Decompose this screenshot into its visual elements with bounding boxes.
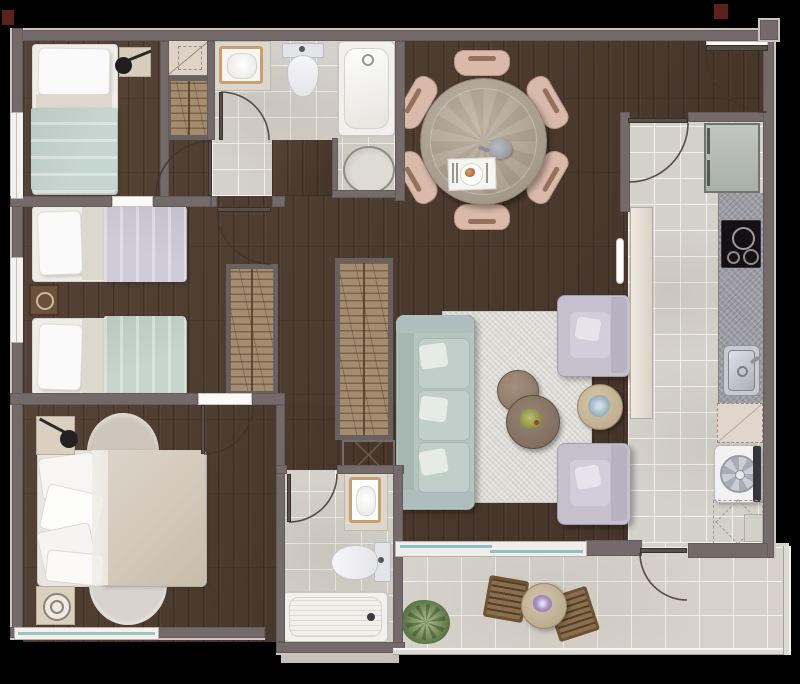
- wall-balcony-stub: [585, 540, 642, 556]
- washer-drum-center: [735, 470, 745, 480]
- armchair-pillow: [574, 316, 601, 341]
- desk-lamp-icon: [60, 430, 78, 448]
- entry-column: [758, 18, 780, 42]
- wall-bedroom1-right: [160, 41, 169, 204]
- door-leaf-bedroom1: [208, 141, 212, 196]
- structural-column: [2, 10, 14, 25]
- wall-kitchen-bottom: [688, 543, 768, 558]
- burner: [727, 251, 740, 264]
- dining-chair: [454, 204, 510, 230]
- sliding-glass-door: [395, 541, 587, 557]
- table-plant: [520, 409, 542, 429]
- sofa-pillow: [419, 395, 449, 422]
- structural-column: [714, 4, 728, 19]
- balcony-railing-right: [783, 546, 791, 655]
- sink-basin: [356, 486, 376, 516]
- plate-food: [465, 168, 475, 177]
- wall-bed1-bottom-b: [153, 196, 211, 207]
- wall-shower-bottom: [332, 190, 396, 198]
- door-leaf-bathroom1: [219, 92, 223, 140]
- threshold: [112, 196, 153, 207]
- teapot-icon: [488, 139, 512, 159]
- plant-leaves: [406, 604, 446, 640]
- window-bedroom1: [11, 112, 23, 199]
- sofa-armrest: [396, 315, 473, 333]
- balcony-floor: [393, 543, 789, 650]
- bathtub-drain: [362, 54, 374, 66]
- bed-blanket-mint: [104, 316, 186, 396]
- hall-wood-notch: [272, 140, 336, 196]
- bed-blanket-lavender: [104, 204, 186, 282]
- cutlery: [486, 163, 488, 183]
- nightstand-ring: [36, 292, 54, 310]
- wall-bath2-top-a: [276, 465, 287, 474]
- bed-blanket-mint: [31, 108, 117, 193]
- small-cabinet: [744, 514, 763, 542]
- bench-white: [616, 238, 624, 284]
- door-leaf-bathroom2: [287, 474, 291, 522]
- bed-sheet: [82, 318, 106, 394]
- wall-closet-bath1: [207, 41, 215, 140]
- sliding-glass-pane: [400, 545, 492, 548]
- sofa-pillow: [418, 342, 448, 370]
- window-sill: [281, 655, 399, 663]
- balcony-railing-bottom: [393, 648, 790, 655]
- bed-pillow: [37, 323, 83, 390]
- toilet-button: [378, 557, 384, 563]
- wall-bath2-bottom: [276, 642, 405, 655]
- wall-kitchen-top-b: [688, 112, 764, 122]
- wall-bath2-right: [393, 465, 403, 655]
- wall-bath1-right: [395, 41, 405, 201]
- wall-bed1-bottom-a: [10, 196, 112, 207]
- wall-top: [10, 28, 776, 41]
- wall-right: [763, 41, 776, 558]
- bathtub-drain: [367, 613, 375, 621]
- washer-lid-open: [753, 446, 761, 502]
- door-leaf-bedroom2: [217, 207, 271, 212]
- door-leaf-entry: [706, 45, 768, 51]
- toilet-button: [299, 46, 305, 52]
- table-plant-berry: [534, 420, 539, 425]
- armchair-back: [611, 445, 627, 521]
- wall-bed2-top-right: [272, 196, 285, 207]
- round-shower: [343, 146, 395, 194]
- floor-plan: [0, 0, 800, 684]
- wall-kitchen-left: [620, 112, 630, 212]
- armchair-back: [611, 297, 627, 373]
- door-leaf-balcony: [640, 548, 687, 553]
- bed-pillow: [37, 210, 83, 275]
- bed-sheet: [82, 206, 106, 280]
- bed-pillow: [38, 47, 111, 96]
- wall-node: [211, 196, 217, 207]
- burner: [732, 227, 755, 250]
- refrigerator: [704, 123, 760, 193]
- wall-shower-left: [332, 138, 338, 198]
- bed-duvet: [100, 450, 205, 585]
- purple-flower: [533, 595, 552, 612]
- door-leaf-kitchen: [628, 118, 688, 123]
- door-leaf-master: [201, 405, 205, 454]
- burner: [743, 249, 759, 265]
- sliding-glass-pane: [490, 550, 583, 553]
- shelf-cabinet-dash: [178, 46, 202, 70]
- dining-chair: [454, 50, 510, 76]
- sink-basin: [227, 53, 257, 79]
- bed-sheet-fold: [92, 450, 108, 585]
- wardrobe-bedroom2: [226, 264, 278, 396]
- appliance-space-dashed: [717, 403, 763, 443]
- peninsula-counter: [630, 207, 653, 419]
- sofa-pillow: [418, 448, 449, 476]
- cutlery: [456, 163, 458, 183]
- wardrobe-hallway: [335, 258, 393, 440]
- wall-bed2-master-a: [10, 393, 198, 405]
- window-master-glass: [18, 632, 155, 635]
- wall-bed2-master-b: [252, 393, 285, 405]
- fridge-handle: [707, 160, 710, 186]
- decor-rings-inner: [50, 600, 64, 614]
- window-bedroom2: [11, 257, 23, 343]
- sink-drain: [737, 366, 748, 377]
- threshold-master: [198, 393, 252, 405]
- fridge-handle: [707, 128, 710, 154]
- toilet-bowl: [331, 545, 378, 580]
- armchair-pillow: [574, 464, 601, 489]
- cutlery: [452, 163, 454, 183]
- wardrobe-bedroom1: [166, 76, 212, 140]
- wall-master-right: [276, 405, 285, 642]
